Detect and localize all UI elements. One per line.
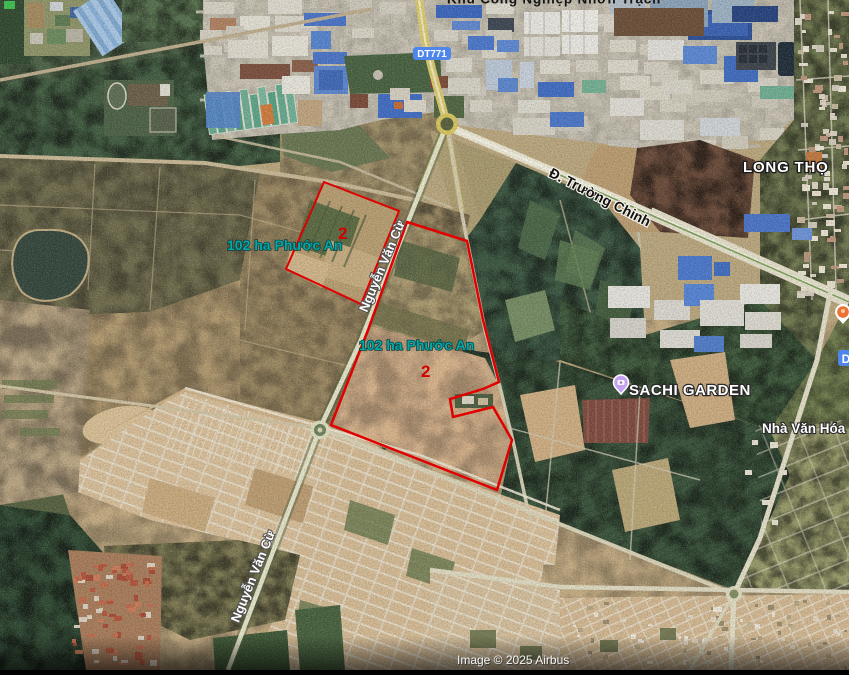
svg-text:D: D: [842, 352, 849, 366]
svg-text:Nhà Văn Hóa: Nhà Văn Hóa: [762, 421, 846, 436]
svg-text:102 ha Phước An: 102 ha Phước An: [359, 337, 474, 353]
svg-text:SACHI GARDEN: SACHI GARDEN: [629, 382, 751, 399]
svg-text:LONG THỌ: LONG THỌ: [743, 159, 829, 176]
svg-text:2: 2: [421, 362, 430, 381]
svg-text:DT771: DT771: [417, 49, 447, 60]
svg-text:2: 2: [338, 224, 347, 243]
svg-text:Image © 2025 Airbus: Image © 2025 Airbus: [457, 653, 569, 667]
svg-text:102 ha Phước An: 102 ha Phước An: [227, 237, 342, 253]
svg-text:Khu Công Nghiệp Nhơn Trạch: Khu Công Nghiệp Nhơn Trạch: [447, 0, 661, 7]
